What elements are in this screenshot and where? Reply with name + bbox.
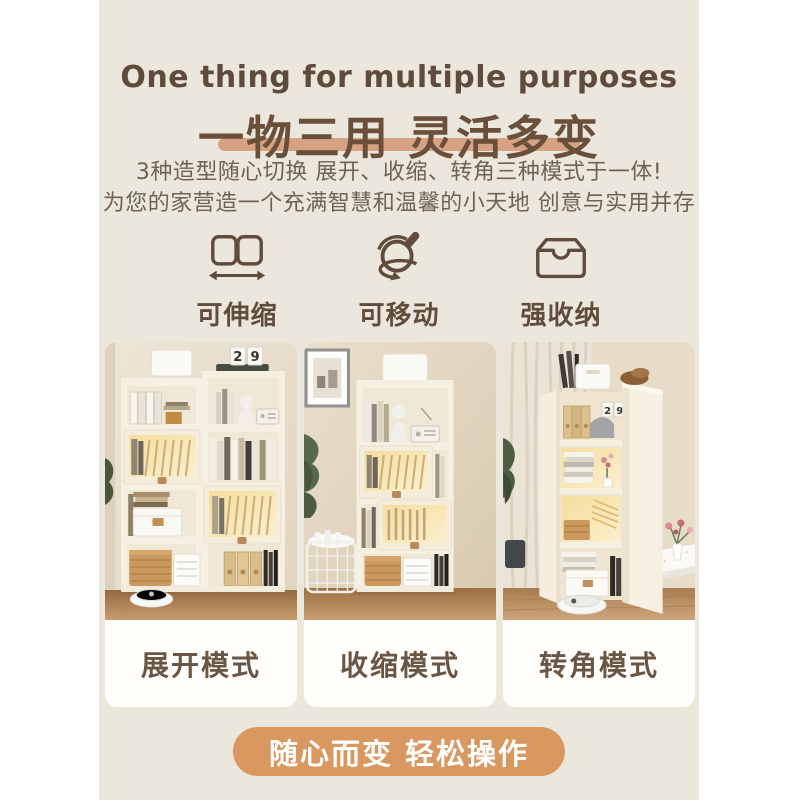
plant-pot — [505, 540, 525, 568]
clear-box — [174, 554, 200, 586]
svg-text:9: 9 — [616, 406, 623, 417]
radio — [257, 409, 279, 424]
footer-pill: 随心而变 轻松操作 — [233, 727, 565, 776]
books-row — [210, 437, 275, 480]
features-row: 可伸缩 可移动 — [99, 228, 699, 332]
subtitle-line-1: 3种造型随心切换 展开、收缩、转角三种模式于一体! — [99, 154, 699, 186]
expanded-bookshelf-scene: 2 9 — [105, 342, 297, 620]
corner-bookshelf-scene: 2 9 — [503, 342, 695, 620]
white-storage-box — [133, 508, 182, 536]
glass-door-lit — [378, 500, 452, 550]
feature-label: 可伸缩 — [196, 295, 277, 332]
flip-calendar: 2 9 — [602, 402, 625, 417]
subtitle-line-2: 为您的家营造一个充满智慧和温馨的小天地 创意与实用并存 — [99, 185, 699, 217]
picture-frame — [306, 350, 348, 406]
photo-contracted-mode — [304, 342, 496, 620]
feature-storage: 强收纳 — [502, 228, 620, 332]
binders — [564, 406, 590, 438]
bookshelf-contracted — [355, 380, 456, 595]
book-stack — [564, 452, 594, 483]
contracted-bookshelf-scene — [304, 342, 496, 620]
glass-door-lit — [360, 446, 433, 498]
book-stack — [562, 552, 596, 572]
storage-box-top — [383, 354, 427, 382]
mode-card-corner: 2 9 — [503, 342, 695, 707]
feature-label: 强收纳 — [520, 295, 601, 332]
file-holders — [224, 552, 261, 586]
stretch-arrows-icon — [206, 228, 268, 292]
binders — [130, 392, 161, 424]
rattan-basket — [129, 550, 171, 586]
mode-label-expanded: 展开模式 — [105, 620, 297, 707]
caster-wheel-icon — [368, 228, 430, 292]
mode-card-contracted: 收缩模式 — [304, 342, 496, 707]
svg-text:2: 2 — [233, 350, 242, 365]
clear-box — [403, 558, 431, 586]
photo-expanded-mode: 2 9 — [105, 342, 297, 620]
mode-card-expanded: 2 9 — [105, 342, 297, 707]
promo-image: One thing for multiple purposes 一物三用 灵活多… — [0, 0, 800, 800]
small-basket — [564, 520, 590, 540]
glass-door-lit — [124, 430, 200, 484]
mode-label-contracted: 收缩模式 — [304, 620, 496, 707]
bookshelf-expanded — [119, 371, 287, 595]
white-storage-box — [566, 570, 608, 596]
storage-box-icon — [530, 228, 592, 292]
mode-cards: 2 9 — [105, 342, 695, 707]
glass-door-lit — [204, 486, 281, 544]
mode-label-corner: 转角模式 — [503, 620, 695, 707]
feature-stretchable: 可伸缩 — [178, 228, 296, 332]
feature-movable: 可移动 — [340, 228, 458, 332]
content-panel: One thing for multiple purposes 一物三用 灵活多… — [99, 0, 699, 800]
photo-corner-mode: 2 9 — [503, 342, 695, 620]
svg-text:9: 9 — [251, 350, 260, 365]
rattan-basket — [365, 556, 401, 586]
svg-text:2: 2 — [604, 406, 611, 417]
feature-label: 可移动 — [358, 295, 439, 332]
storage-box-top — [151, 350, 191, 376]
title-english: One thing for multiple purposes — [99, 60, 699, 95]
